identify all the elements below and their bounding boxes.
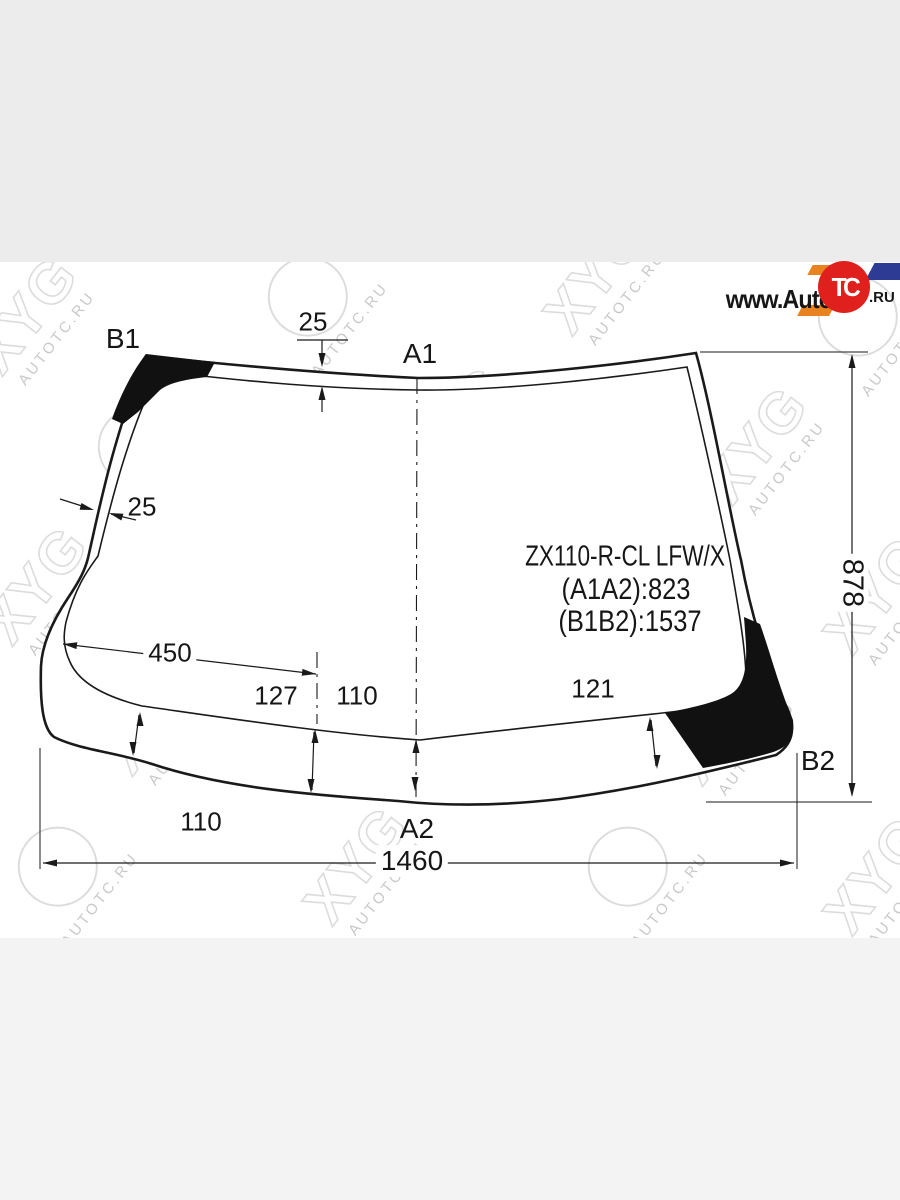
label-b2: B2 (801, 745, 835, 777)
dim-1460-width: 1460 (376, 845, 448, 877)
dim-121: 121 (571, 674, 614, 705)
dim-110-center: 110 (336, 681, 377, 712)
label-a2: A2 (400, 813, 434, 845)
logo-red-circle-icon: TC (818, 261, 870, 313)
dim-left-band-25: 25 (128, 492, 157, 523)
dim-110-left: 110 (180, 807, 221, 838)
logo-text-prefix: www.Auto (726, 284, 832, 315)
logo-text-suffix: .RU (869, 289, 895, 306)
dim-878-height: 878 (836, 554, 869, 612)
windshield-diagram (0, 0, 900, 1200)
part-number: ZX110-R-CL LFW/X (525, 541, 725, 574)
autotc-logo: www.Auto TC .RU (700, 258, 900, 322)
logo-tc-monogram: TC (831, 272, 856, 303)
dim-450: 450 (143, 638, 196, 669)
dim-127: 127 (254, 681, 297, 712)
label-b1: B1 (106, 323, 140, 355)
label-a1: A1 (403, 338, 437, 370)
dim-b1b2-value: (B1B2):1537 (558, 605, 701, 639)
page: XYGAUTOTC.RU AUTOTC.RU XYGAUTOTC.RU AUTO… (0, 0, 900, 1200)
dim-a1a2-value: (A1A2):823 (561, 573, 690, 607)
dim-top-band-25: 25 (299, 307, 328, 338)
logo-blue-stripe-icon (865, 263, 900, 280)
